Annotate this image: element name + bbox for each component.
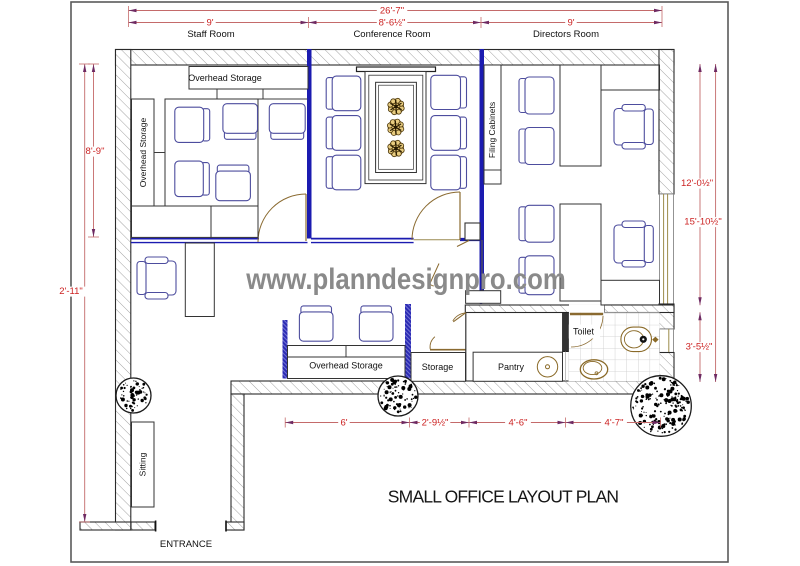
svg-text:ENTRANCE: ENTRANCE — [160, 539, 212, 550]
svg-text:Filing Cabinets: Filing Cabinets — [487, 102, 497, 158]
svg-text:6': 6' — [340, 418, 347, 429]
svg-text:4'-7": 4'-7" — [605, 418, 624, 429]
svg-text:9': 9' — [206, 18, 213, 29]
svg-text:Sitting: Sitting — [138, 452, 148, 476]
svg-text:2'-9½": 2'-9½" — [422, 418, 449, 429]
svg-text:Directors Room: Directors Room — [533, 29, 599, 40]
svg-text:www.planndesignpro.com: www.planndesignpro.com — [245, 262, 565, 295]
svg-text:8'-9": 8'-9" — [86, 146, 105, 157]
svg-text:Overhead Storage: Overhead Storage — [138, 118, 148, 188]
svg-text:Staff Room: Staff Room — [187, 29, 234, 40]
svg-text:4'-6": 4'-6" — [509, 418, 528, 429]
svg-text:12'-0½": 12'-0½" — [681, 178, 713, 189]
svg-text:3'-5½": 3'-5½" — [686, 342, 713, 353]
svg-text:26'-7": 26'-7" — [380, 6, 404, 17]
svg-text:15'-10½": 15'-10½" — [684, 217, 721, 228]
svg-text:Overhead Storage: Overhead Storage — [188, 73, 262, 83]
svg-text:Toilet: Toilet — [573, 327, 595, 337]
svg-text:8'-6½": 8'-6½" — [379, 18, 406, 29]
svg-text:Overhead Storage: Overhead Storage — [309, 361, 383, 371]
svg-text:Storage: Storage — [422, 362, 454, 372]
svg-text:Conference Room: Conference Room — [353, 29, 430, 40]
svg-text:2'-11": 2'-11" — [59, 286, 83, 297]
svg-text:Pantry: Pantry — [498, 362, 525, 372]
svg-text:SMALL OFFICE LAYOUT PLAN: SMALL OFFICE LAYOUT PLAN — [388, 487, 619, 507]
svg-text:9': 9' — [567, 18, 574, 29]
